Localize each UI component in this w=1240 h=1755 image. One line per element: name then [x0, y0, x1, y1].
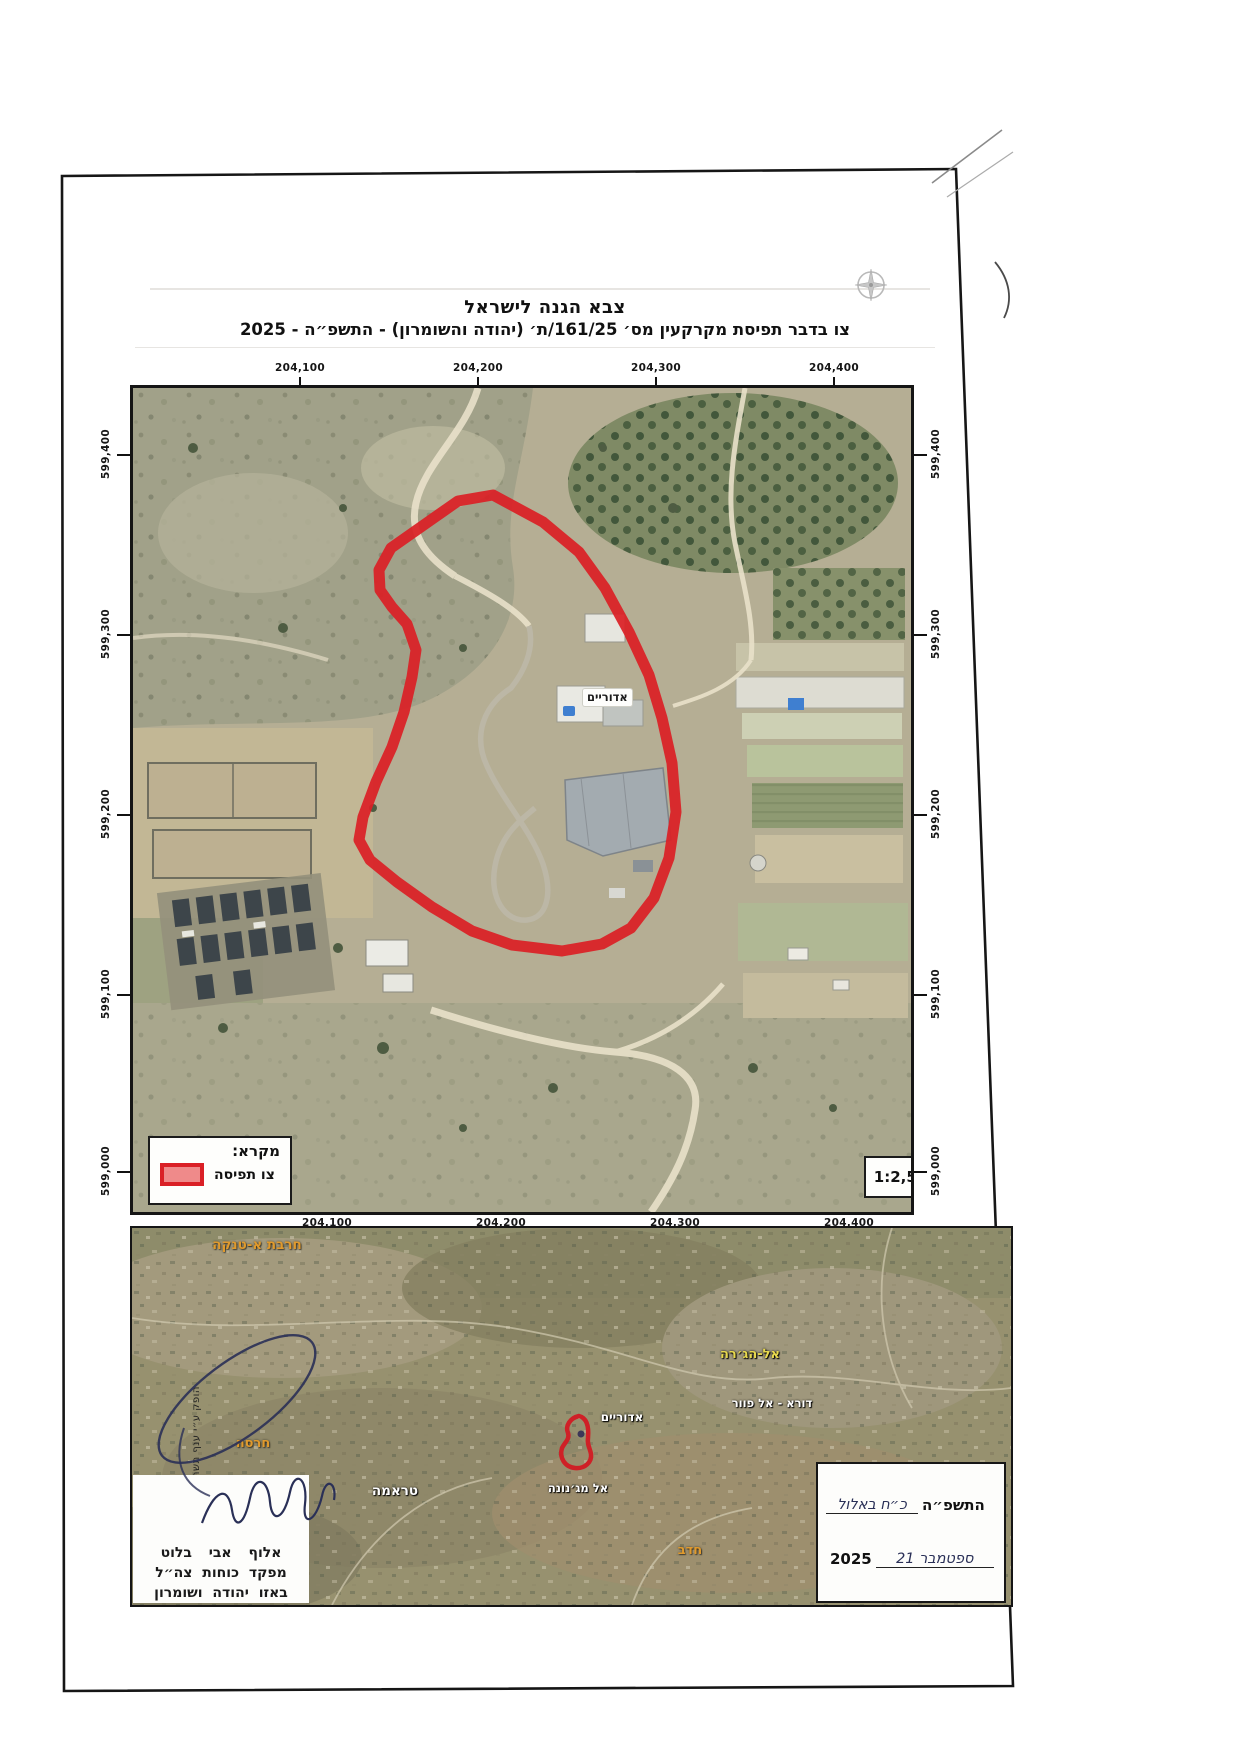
hebrew-date-blank: כ״ח באלול [826, 1494, 918, 1514]
order-title: צו בדבר תפיסת מקרקעין מס׳ 161/25/ת׳ (יהו… [145, 320, 945, 339]
place-label: אדוריים [572, 1410, 672, 1424]
place-label: חרסה [203, 1436, 303, 1451]
seizure-swatch-icon [160, 1163, 204, 1186]
scan-streak [150, 288, 930, 290]
compass-rose-icon [852, 266, 890, 304]
scanned-seizure-order-document: { "header": { "line1": "צבא הגנה לישראל"… [0, 0, 1240, 1755]
y-tick: 599,400 [100, 422, 112, 486]
signatory-role: מפקד כוחות צה״ל [133, 1563, 309, 1583]
y-tick: 599,000 [100, 1139, 112, 1203]
fold-mark [932, 130, 1002, 183]
place-label: דורא - אל פוור [702, 1396, 842, 1410]
place-label: חדב [640, 1543, 740, 1558]
signatory-name: אלוף אבי בלוט [133, 1543, 309, 1563]
signature-block: אלוף אבי בלוט מפקד כוחות צה״ל באזו יהודה… [133, 1475, 309, 1603]
y-tick: 599,300 [930, 602, 942, 666]
scan-mark [995, 262, 1009, 318]
satellite-imagery [133, 388, 911, 1212]
y-tick: 599,200 [100, 782, 112, 846]
document-header: צבא הגנה לישראל צו בדבר תפיסת מקרקעין מס… [145, 297, 945, 339]
handwritten-gregorian-date: 21 ספטמבר [896, 1551, 973, 1567]
y-tick: 599,200 [930, 782, 942, 846]
handwritten-hebrew-date: כ״ח באלול [837, 1497, 907, 1513]
x-tick: 204,300 [624, 362, 688, 374]
gregorian-date-blank: 21 ספטמבר [876, 1548, 994, 1568]
camp-structures [157, 873, 335, 1010]
date-block: כ״ח באלול התשפ״ה 2025 21 ספטמבר [816, 1462, 1006, 1603]
place-label: טראמה [335, 1483, 455, 1499]
legend-title: מקרא: [150, 1142, 280, 1160]
place-label: אל מג׳נונה [518, 1481, 638, 1495]
y-tick: 599,100 [100, 962, 112, 1026]
overview-satellite-map: חרבת א-טנקה אל-הג׳רה דורא - אל פוור אדור… [130, 1226, 1013, 1607]
x-tick: 204,400 [802, 362, 866, 374]
legend-box: מקרא: צו תפיסה [148, 1136, 292, 1205]
signatory-region: באזו יהודה ושומרון [133, 1583, 309, 1603]
scale-label: קנ״מ: 1:2,500 [874, 1168, 914, 1186]
site-label-aduraim: אדוריים [583, 689, 632, 706]
y-tick: 599,300 [100, 602, 112, 666]
gregorian-year: 2025 [830, 1550, 872, 1568]
x-tick: 204,100 [268, 362, 332, 374]
scale-box: קנ״מ: 1:2,500 [864, 1156, 914, 1198]
x-tick: 204,200 [446, 362, 510, 374]
main-satellite-map: אדוריים מקרא: צו תפיסה קנ״מ: 1:2,500 [130, 385, 914, 1215]
legend-item-label: צו תפיסה [214, 1167, 275, 1183]
idf-title: צבא הגנה לישראל [145, 297, 945, 318]
place-label: אל-הג׳רה [690, 1347, 810, 1362]
fold-mark [947, 152, 1013, 197]
y-tick: 599,000 [930, 1139, 942, 1203]
y-tick: 599,400 [930, 422, 942, 486]
place-label: חרבת א-טנקה [192, 1237, 322, 1253]
scan-streak [135, 347, 935, 348]
y-tick: 599,100 [930, 962, 942, 1026]
hebrew-year: התשפ״ה [922, 1496, 985, 1514]
